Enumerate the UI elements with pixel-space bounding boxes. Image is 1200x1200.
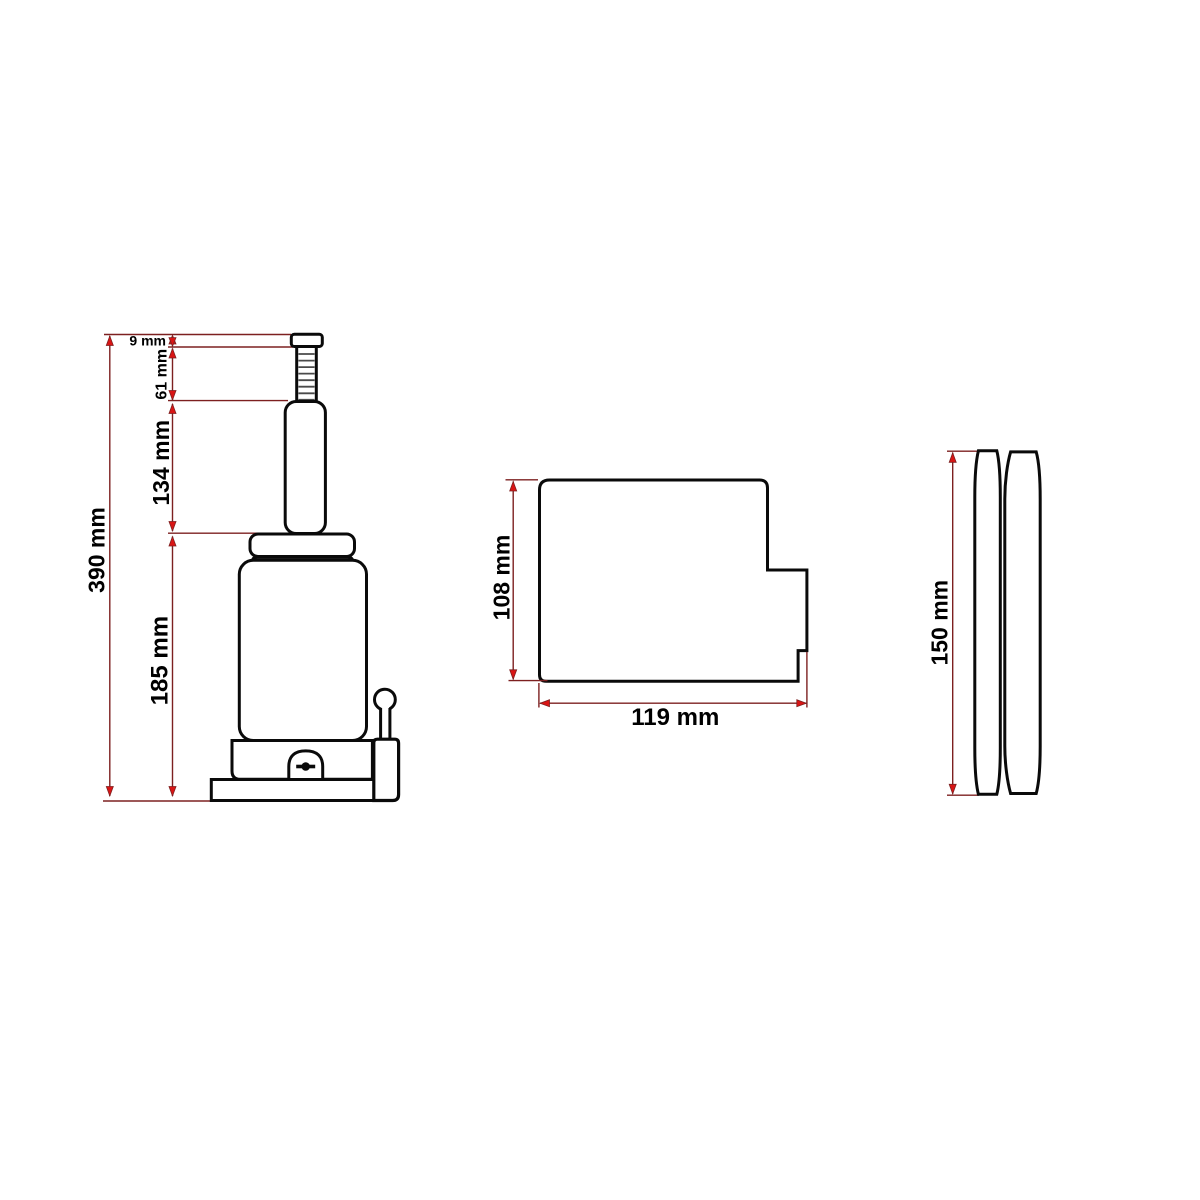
svg-text:108 mm: 108 mm xyxy=(489,535,515,621)
svg-text:61 mm: 61 mm xyxy=(153,349,170,400)
svg-text:119 mm: 119 mm xyxy=(631,704,719,731)
svg-text:9 mm: 9 mm xyxy=(129,333,166,349)
svg-text:150 mm: 150 mm xyxy=(927,580,953,666)
svg-text:390 mm: 390 mm xyxy=(84,507,110,593)
svg-text:134 mm: 134 mm xyxy=(148,420,174,506)
svg-text:185 mm: 185 mm xyxy=(146,616,173,705)
